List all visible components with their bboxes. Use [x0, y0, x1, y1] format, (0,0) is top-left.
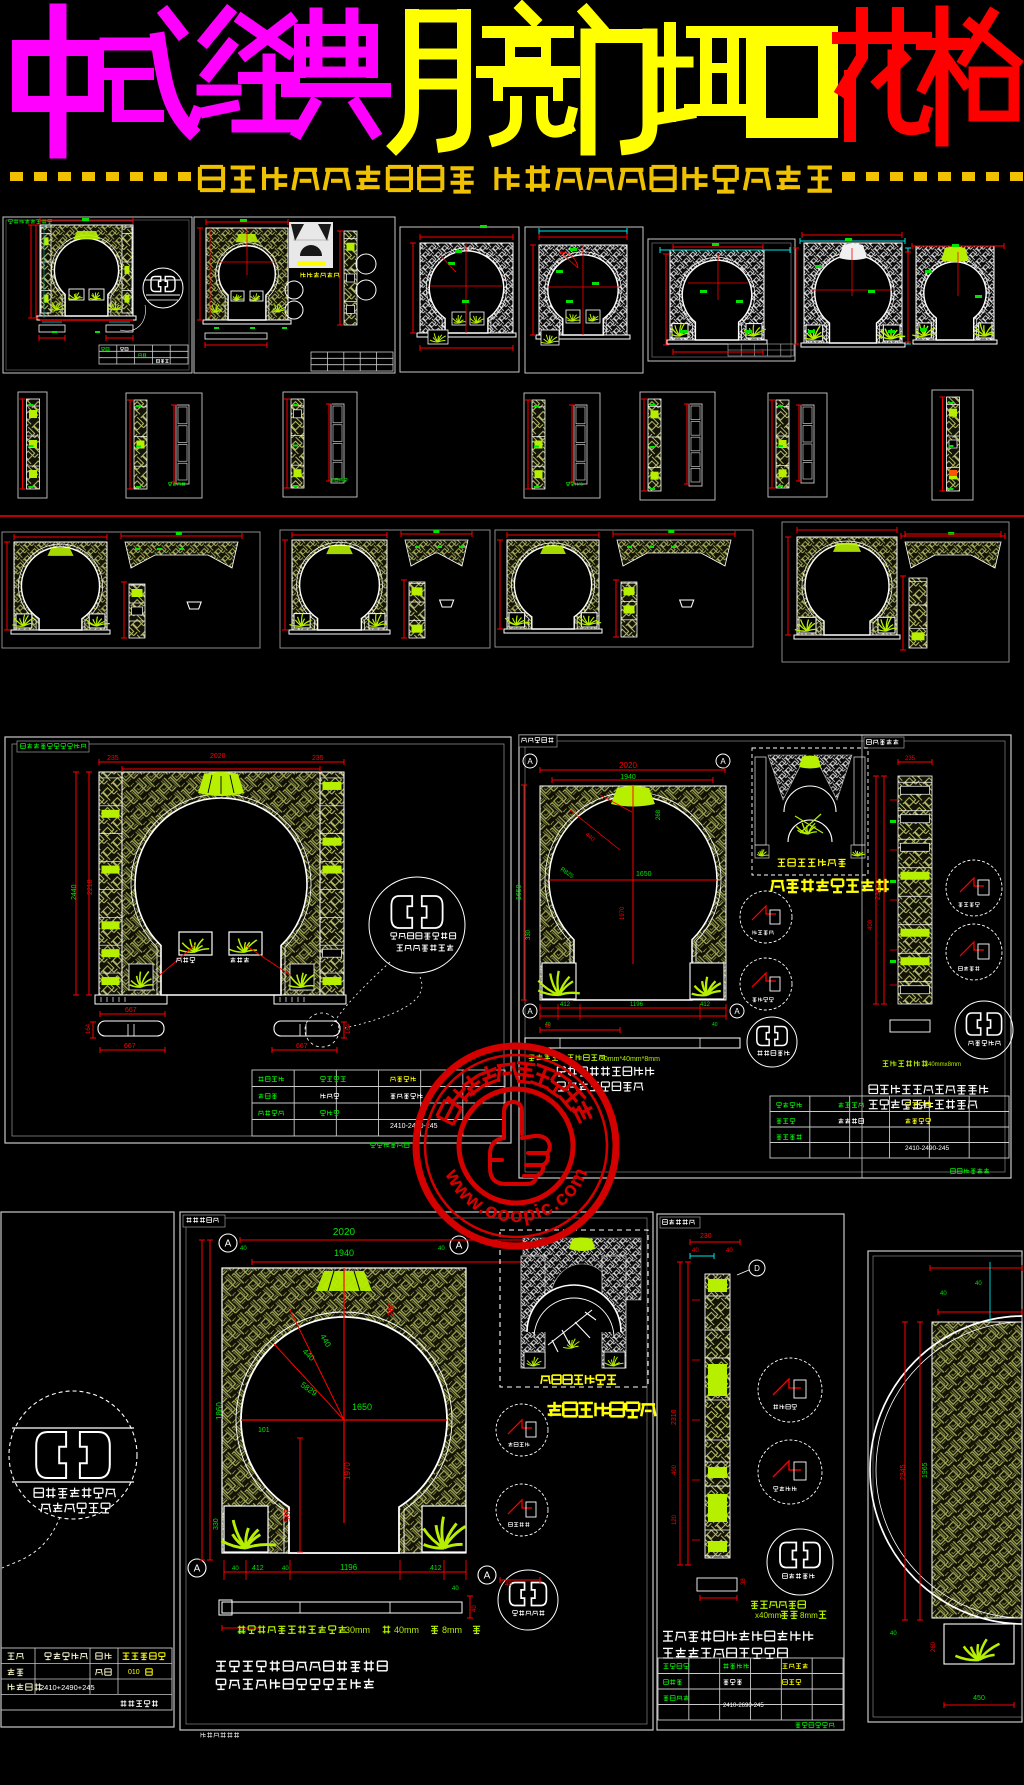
- svg-text:260: 260: [387, 1302, 396, 1316]
- svg-text:40: 40: [438, 1246, 445, 1252]
- svg-text:40: 40: [940, 1291, 947, 1297]
- svg-text:8mm: 8mm: [442, 1625, 462, 1635]
- svg-text:A: A: [527, 757, 533, 766]
- svg-text:268: 268: [656, 809, 662, 820]
- svg-text:1196: 1196: [630, 1002, 644, 1008]
- svg-text:412: 412: [700, 1002, 711, 1008]
- svg-text:40: 40: [452, 1586, 459, 1592]
- svg-text:40: 40: [692, 1248, 699, 1254]
- svg-text:400: 400: [672, 1464, 678, 1475]
- svg-text:40: 40: [232, 1566, 239, 1572]
- svg-text:2410+2490+245: 2410+2490+245: [40, 1683, 95, 1692]
- svg-text:1650: 1650: [636, 871, 652, 878]
- svg-text:D: D: [754, 1264, 760, 1273]
- svg-text:2210: 2210: [87, 879, 94, 895]
- svg-text:2020: 2020: [619, 761, 637, 770]
- svg-text:2020: 2020: [210, 753, 226, 760]
- svg-text:101: 101: [258, 1427, 270, 1434]
- svg-text:40: 40: [505, 1582, 512, 1588]
- svg-text:30mm*40mm*8mm: 30mm*40mm*8mm: [600, 1056, 660, 1063]
- svg-text:412: 412: [430, 1565, 442, 1572]
- svg-text:2410-2690-245: 2410-2690-245: [723, 1703, 764, 1709]
- svg-text:x40mm: x40mm: [755, 1611, 782, 1620]
- svg-text:40: 40: [712, 1022, 718, 1028]
- svg-text:1196: 1196: [340, 1563, 358, 1572]
- svg-text:450: 450: [973, 1695, 985, 1702]
- svg-text:235: 235: [312, 755, 324, 762]
- svg-text:2410-2490-245: 2410-2490-245: [905, 1145, 949, 1152]
- svg-text:330: 330: [213, 1518, 220, 1530]
- svg-text:2345: 2345: [900, 1464, 907, 1480]
- svg-text:2440: 2440: [71, 884, 78, 900]
- svg-text:40mm: 40mm: [394, 1625, 419, 1635]
- svg-text:235: 235: [905, 756, 916, 762]
- svg-text:412: 412: [252, 1565, 264, 1572]
- svg-text:2310: 2310: [875, 884, 882, 900]
- svg-text:1860: 1860: [215, 1402, 224, 1420]
- svg-text:A: A: [456, 1241, 463, 1252]
- svg-text:40: 40: [726, 1248, 733, 1254]
- svg-text:235: 235: [107, 755, 119, 762]
- svg-text:667: 667: [125, 1007, 137, 1014]
- svg-text:412: 412: [560, 1002, 571, 1008]
- svg-text:8mm: 8mm: [800, 1611, 818, 1620]
- svg-text:40: 40: [890, 1631, 897, 1637]
- svg-text:2410-2490-245: 2410-2490-245: [390, 1123, 438, 1130]
- svg-text:567: 567: [283, 1508, 292, 1522]
- svg-text:120: 120: [672, 1514, 678, 1525]
- svg-text:230: 230: [700, 1233, 712, 1240]
- svg-text:2310: 2310: [671, 1409, 678, 1425]
- svg-text:40: 40: [472, 1605, 478, 1612]
- svg-text:1970: 1970: [343, 1462, 352, 1480]
- svg-text:667: 667: [124, 1043, 136, 1050]
- svg-text:330: 330: [526, 929, 532, 940]
- svg-text:164: 164: [346, 1023, 352, 1034]
- svg-text:38: 38: [741, 1578, 747, 1585]
- svg-text:40: 40: [240, 1246, 247, 1252]
- svg-text:A: A: [194, 1564, 201, 1575]
- svg-text:A: A: [225, 1239, 232, 1250]
- svg-text:30mm: 30mm: [345, 1625, 370, 1635]
- svg-text:1940: 1940: [334, 1248, 354, 1258]
- svg-text:1965: 1965: [922, 1462, 929, 1478]
- svg-text:A: A: [484, 1571, 491, 1582]
- svg-text:A: A: [720, 757, 726, 766]
- svg-text:A: A: [734, 1007, 740, 1016]
- svg-text:A: A: [527, 1007, 533, 1016]
- svg-text:1650: 1650: [516, 884, 523, 900]
- svg-text:x40mmx8mm: x40mmx8mm: [925, 1062, 961, 1068]
- svg-text:2020: 2020: [333, 1227, 356, 1238]
- svg-text:1970: 1970: [620, 906, 626, 920]
- svg-text:164: 164: [86, 1023, 92, 1034]
- svg-text:40: 40: [975, 1281, 982, 1287]
- svg-text:667: 667: [296, 1043, 308, 1050]
- svg-text:40: 40: [282, 1566, 289, 1572]
- svg-text:010: 010: [128, 1669, 140, 1676]
- svg-text:1940: 1940: [620, 774, 636, 781]
- svg-text:260: 260: [931, 1641, 937, 1652]
- svg-text:400: 400: [868, 919, 874, 930]
- svg-text:40: 40: [545, 1024, 551, 1030]
- svg-text:1650: 1650: [352, 1402, 372, 1412]
